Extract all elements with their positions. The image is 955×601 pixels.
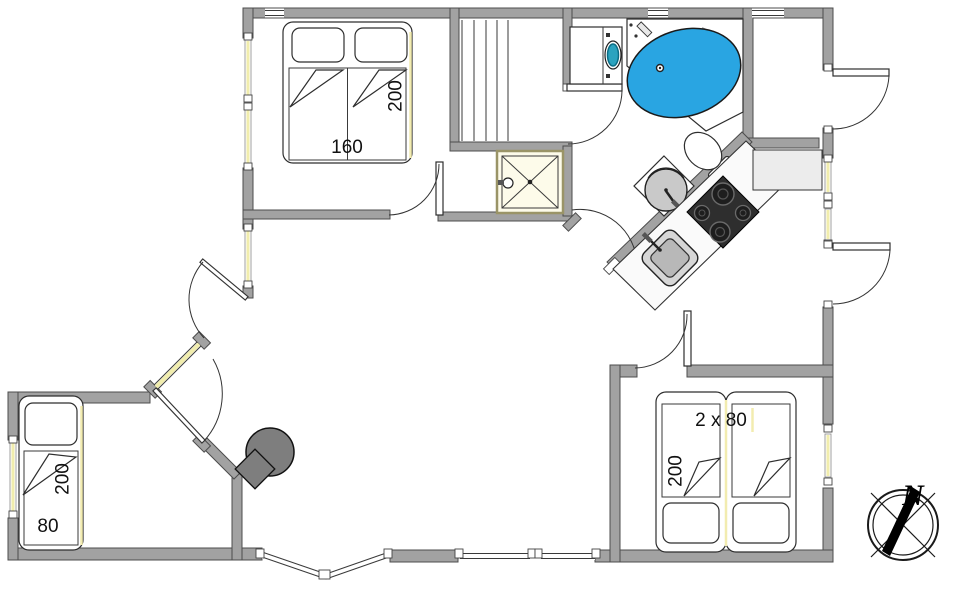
room-bedroom-bottom-left: 200 80 — [19, 396, 83, 550]
wood-stove-icon — [235, 428, 294, 489]
window — [824, 155, 832, 200]
floor-plan-page: 200 160 200 80 2 x 80 200 — [0, 0, 955, 601]
beds-width-label: 2 x 80 — [695, 410, 747, 431]
window — [154, 342, 201, 389]
door-bedroom-bottom-left — [156, 359, 222, 441]
floor-plan-drawing: 200 160 200 80 2 x 80 200 — [0, 0, 955, 601]
door-terrace — [189, 262, 245, 338]
door-exterior-hall — [824, 64, 889, 133]
room-bedroom-top-left: 200 160 — [283, 22, 412, 163]
washing-machine-icon — [570, 27, 622, 84]
shower-icon — [497, 151, 563, 213]
window — [752, 9, 784, 18]
doors — [156, 64, 890, 441]
bed-width-label: 160 — [331, 137, 363, 158]
door-bedroom-bottom-right — [635, 311, 691, 368]
window — [265, 9, 284, 18]
window — [455, 549, 600, 560]
corner-bathtub-icon — [616, 14, 753, 132]
window — [648, 9, 668, 18]
compass-north-label: N — [901, 479, 925, 512]
bed-length-label: 200 — [386, 80, 407, 112]
bay-window — [256, 549, 392, 580]
compass-rose-icon: N — [868, 479, 938, 560]
bed-length-label: 200 — [53, 463, 74, 495]
door-bedroom-top-left — [389, 162, 443, 215]
window — [244, 33, 252, 102]
sauna-bench-icon — [462, 20, 508, 141]
window — [824, 425, 832, 485]
door-exterior-kitchen — [824, 241, 890, 308]
window — [9, 436, 17, 518]
window — [244, 103, 252, 170]
bed-length-label: 200 — [666, 455, 687, 487]
window — [244, 224, 252, 288]
door-sauna — [563, 84, 622, 144]
room-bedroom-bottom-right: 2 x 80 200 — [656, 392, 796, 552]
window — [824, 201, 832, 247]
bed-width-label: 80 — [37, 516, 58, 537]
